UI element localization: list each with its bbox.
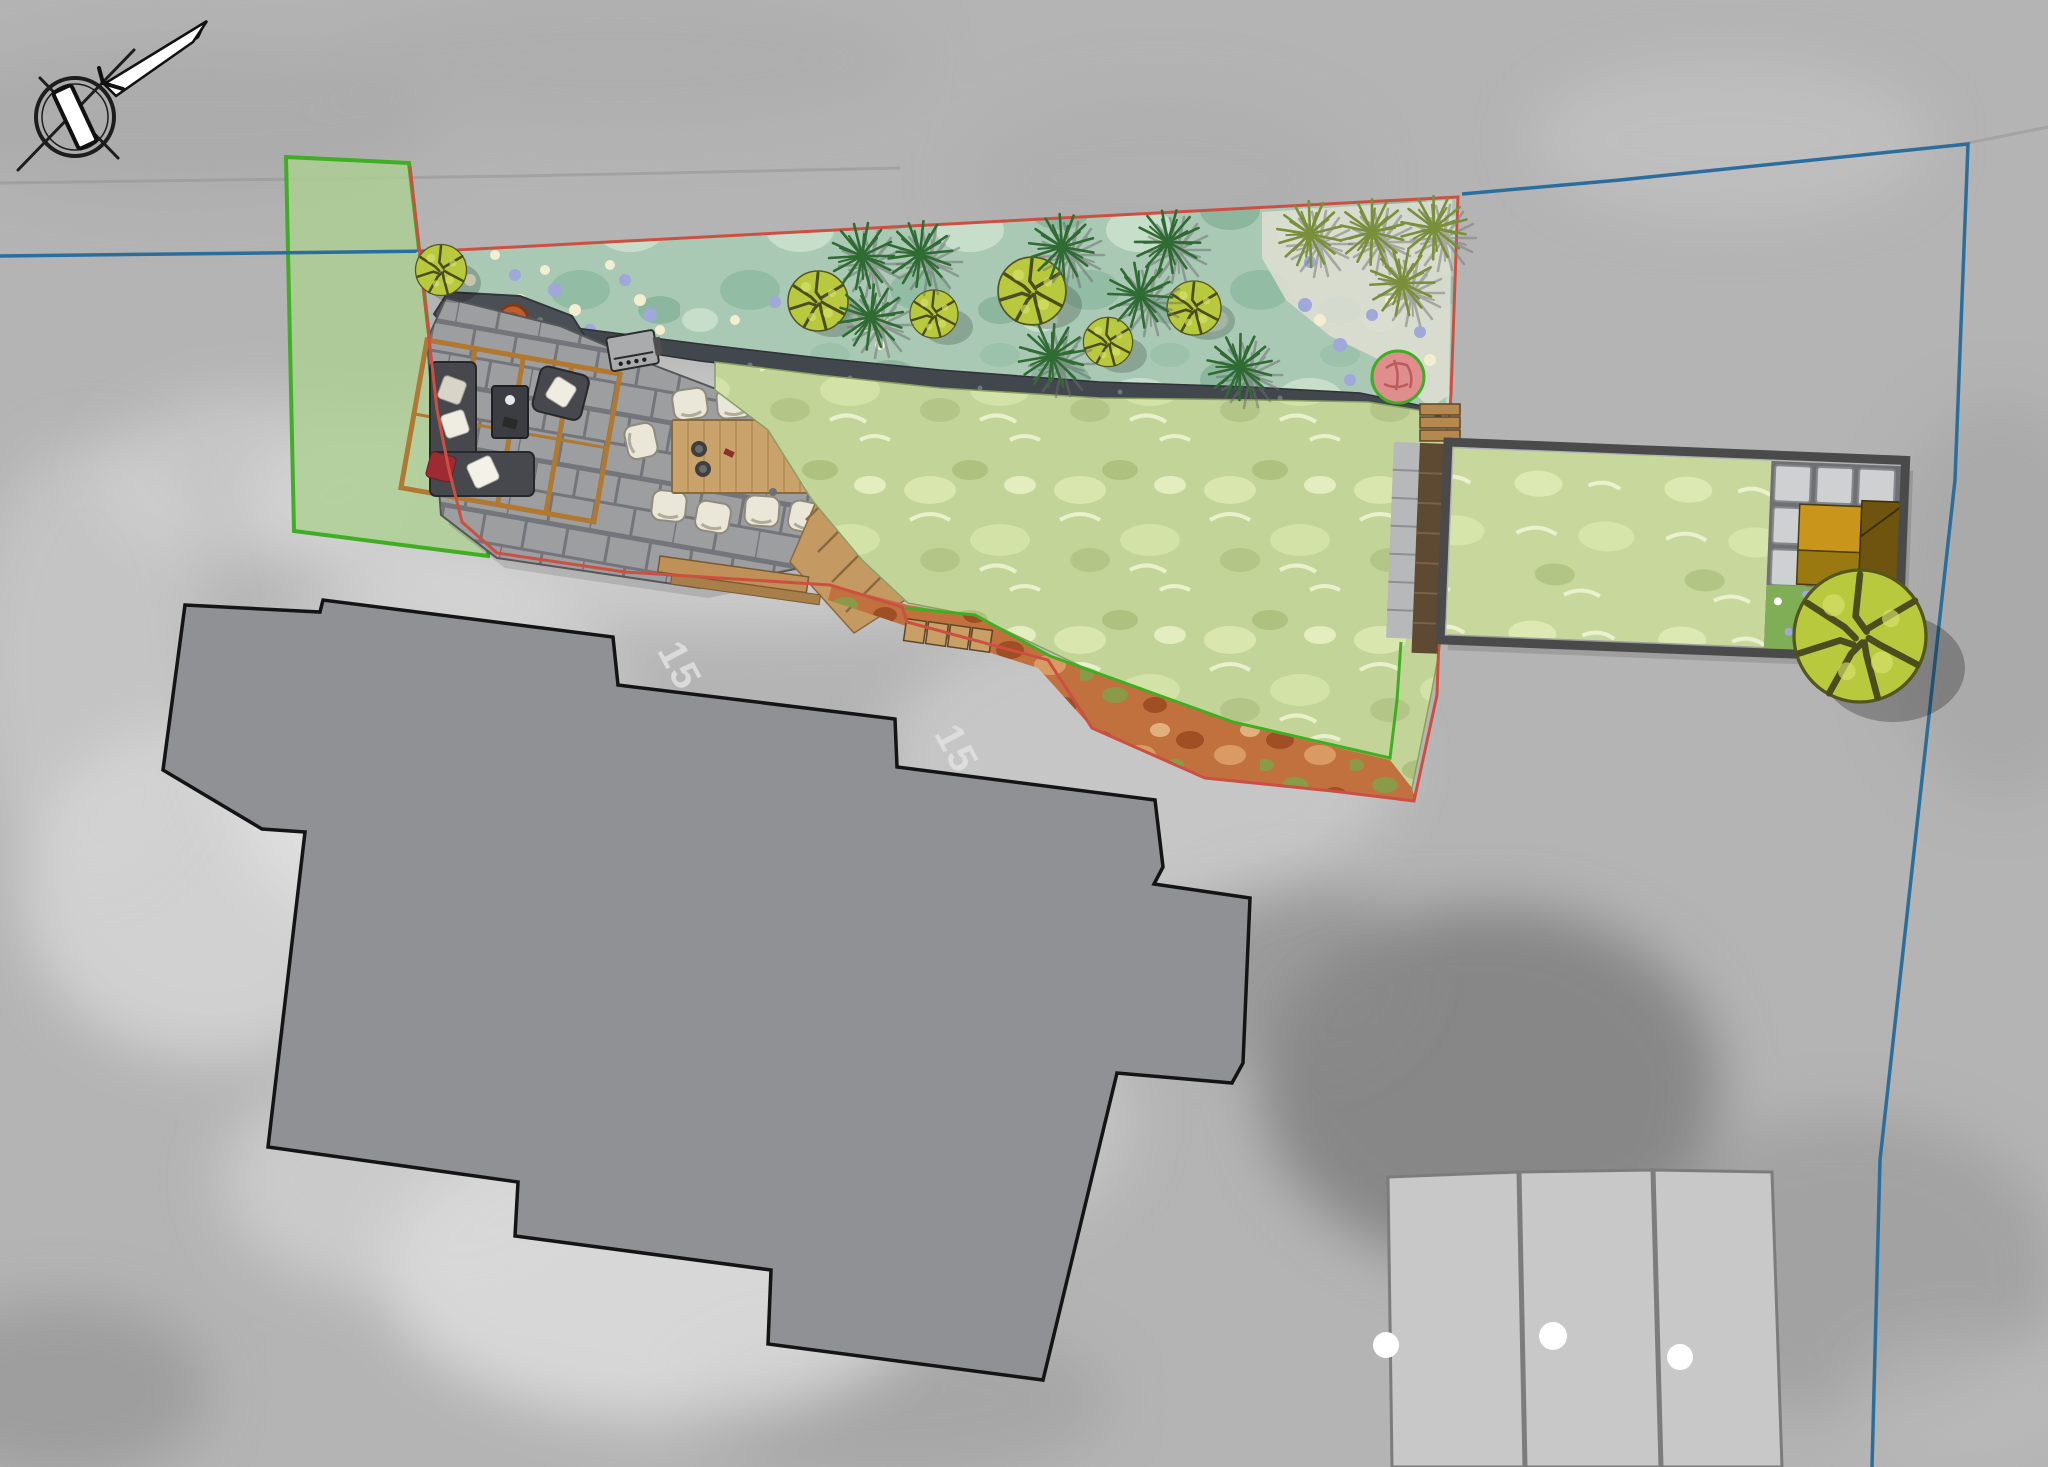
dining-chair: [694, 499, 733, 534]
tree-icon: [1794, 570, 1926, 702]
garage-bay-3: [1654, 1170, 1782, 1467]
tree-icon: [1083, 317, 1132, 366]
roof-light-dot: [1667, 1344, 1693, 1370]
coffee-table: [492, 386, 528, 438]
dining-chair: [744, 495, 780, 527]
garage-bay-2: [1520, 1170, 1660, 1467]
site-plan-canvas: 15 15: [0, 0, 2048, 1467]
tree-icon: [416, 245, 467, 296]
roof-light-dot: [1373, 1332, 1399, 1358]
dining-chair: [671, 387, 709, 421]
dining-chair: [651, 489, 688, 522]
divider-steps: [1420, 404, 1460, 441]
rear-lawn: [1446, 448, 1771, 647]
pink-feature-plant: [1372, 351, 1424, 403]
tree-icon: [910, 290, 958, 338]
roof-light-dot: [1539, 1322, 1567, 1350]
tree-icon: [1167, 281, 1221, 335]
garage-block: [1373, 1170, 1782, 1467]
landscape-plan-drawing: 15 15: [0, 0, 2048, 1467]
garage-bay-1: [1388, 1172, 1524, 1467]
dining-chair: [623, 421, 659, 460]
